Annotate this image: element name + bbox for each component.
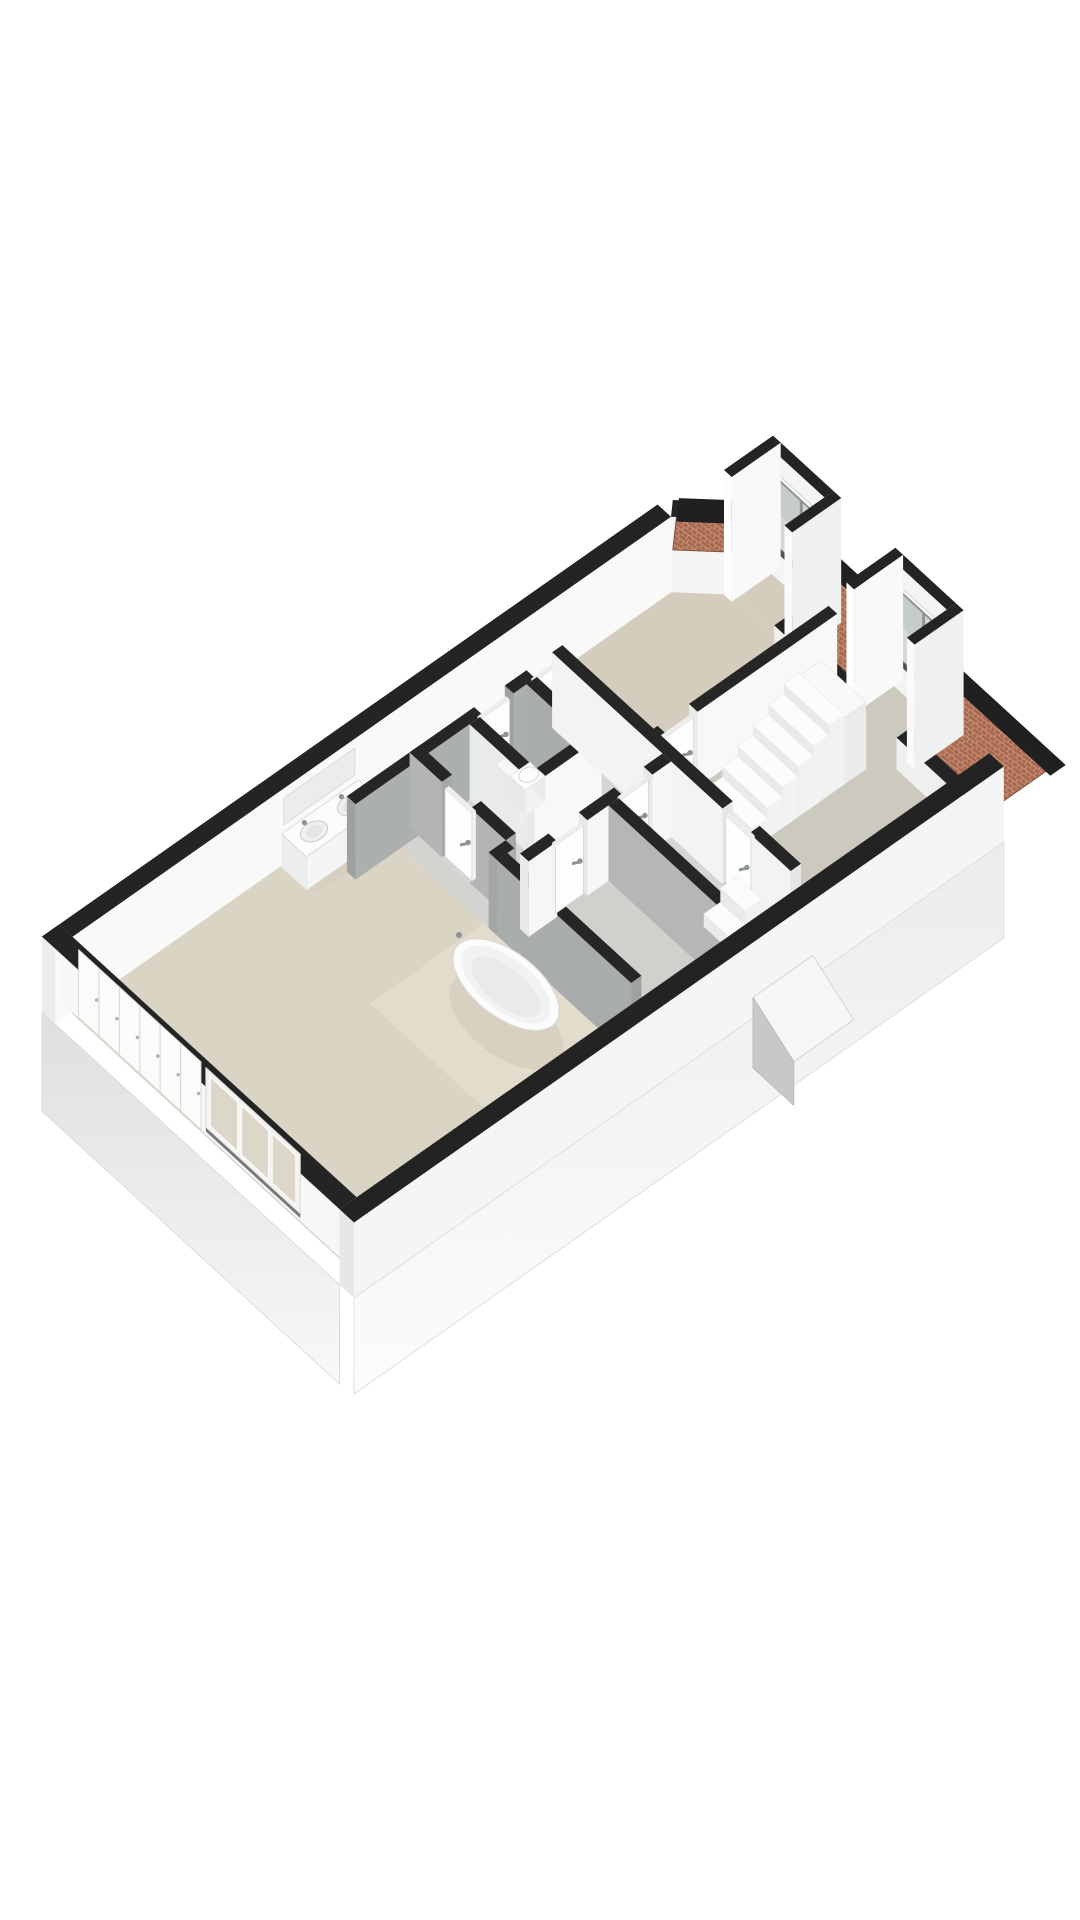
- floorplan-3d-render: [0, 0, 1080, 1920]
- page: [0, 0, 1080, 1920]
